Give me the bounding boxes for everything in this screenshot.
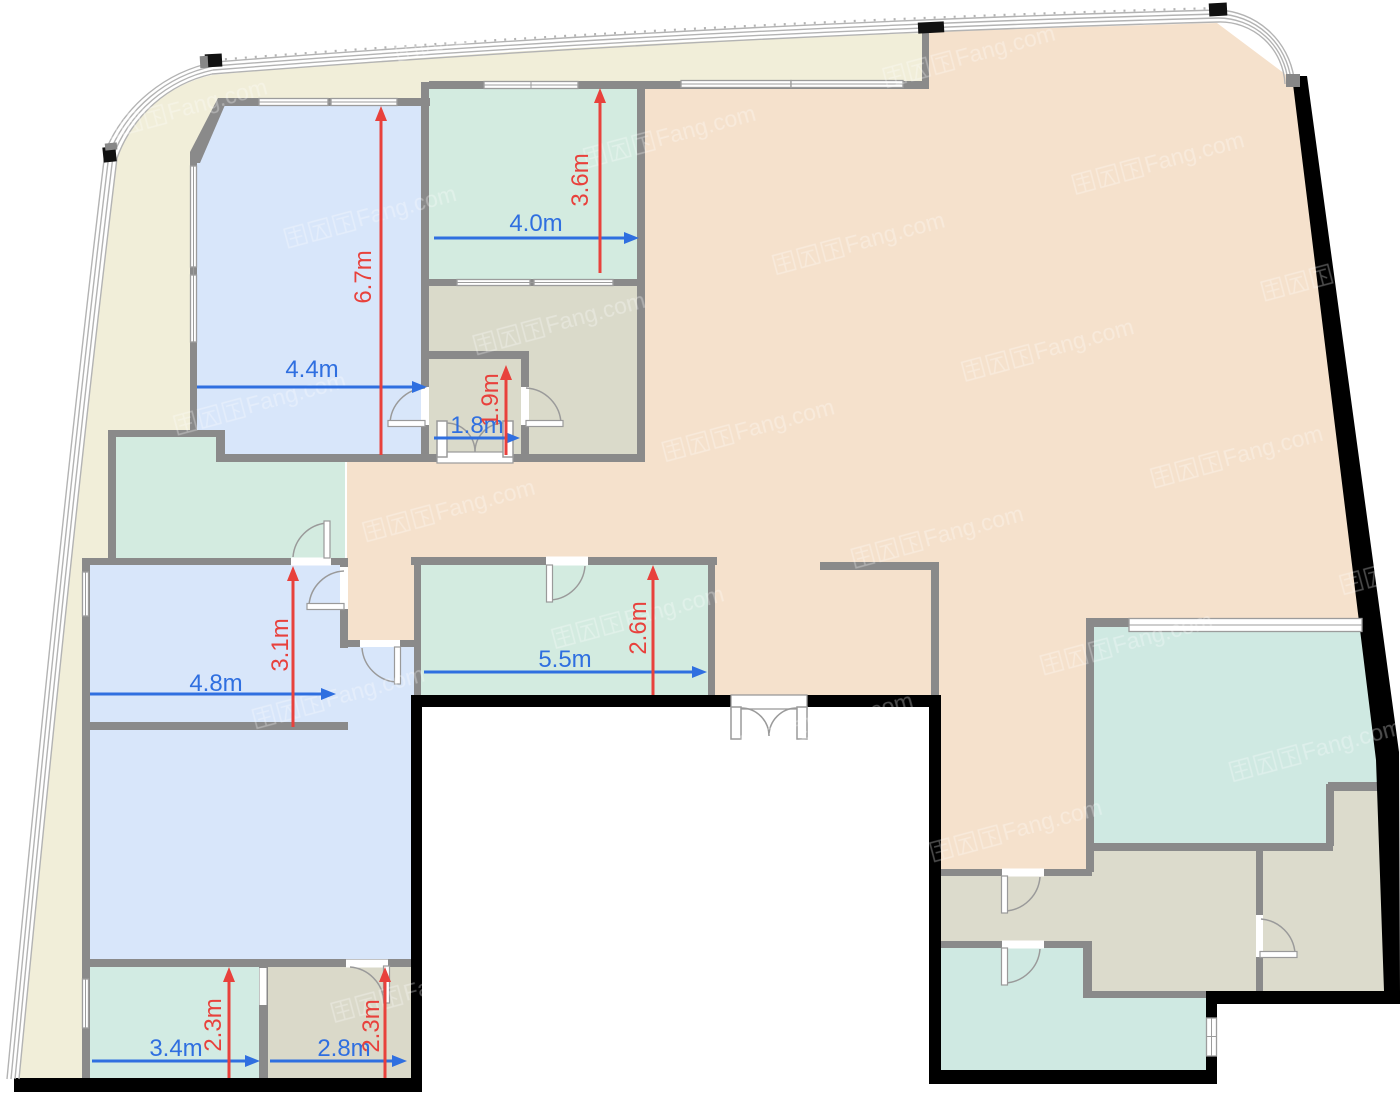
svg-text:3.1m: 3.1m bbox=[267, 618, 294, 671]
svg-text:2.3m: 2.3m bbox=[358, 999, 385, 1052]
svg-text:4.8m: 4.8m bbox=[189, 670, 242, 697]
svg-text:3.4m: 3.4m bbox=[149, 1035, 202, 1062]
svg-text:2.6m: 2.6m bbox=[625, 601, 652, 654]
svg-text:6.7m: 6.7m bbox=[350, 250, 377, 303]
svg-text:3.6m: 3.6m bbox=[567, 153, 594, 206]
svg-text:2.3m: 2.3m bbox=[200, 998, 227, 1051]
svg-text:1.9m: 1.9m bbox=[477, 373, 504, 426]
svg-text:4.0m: 4.0m bbox=[509, 210, 562, 237]
svg-text:5.5m: 5.5m bbox=[538, 646, 591, 673]
svg-text:4.4m: 4.4m bbox=[285, 356, 338, 383]
